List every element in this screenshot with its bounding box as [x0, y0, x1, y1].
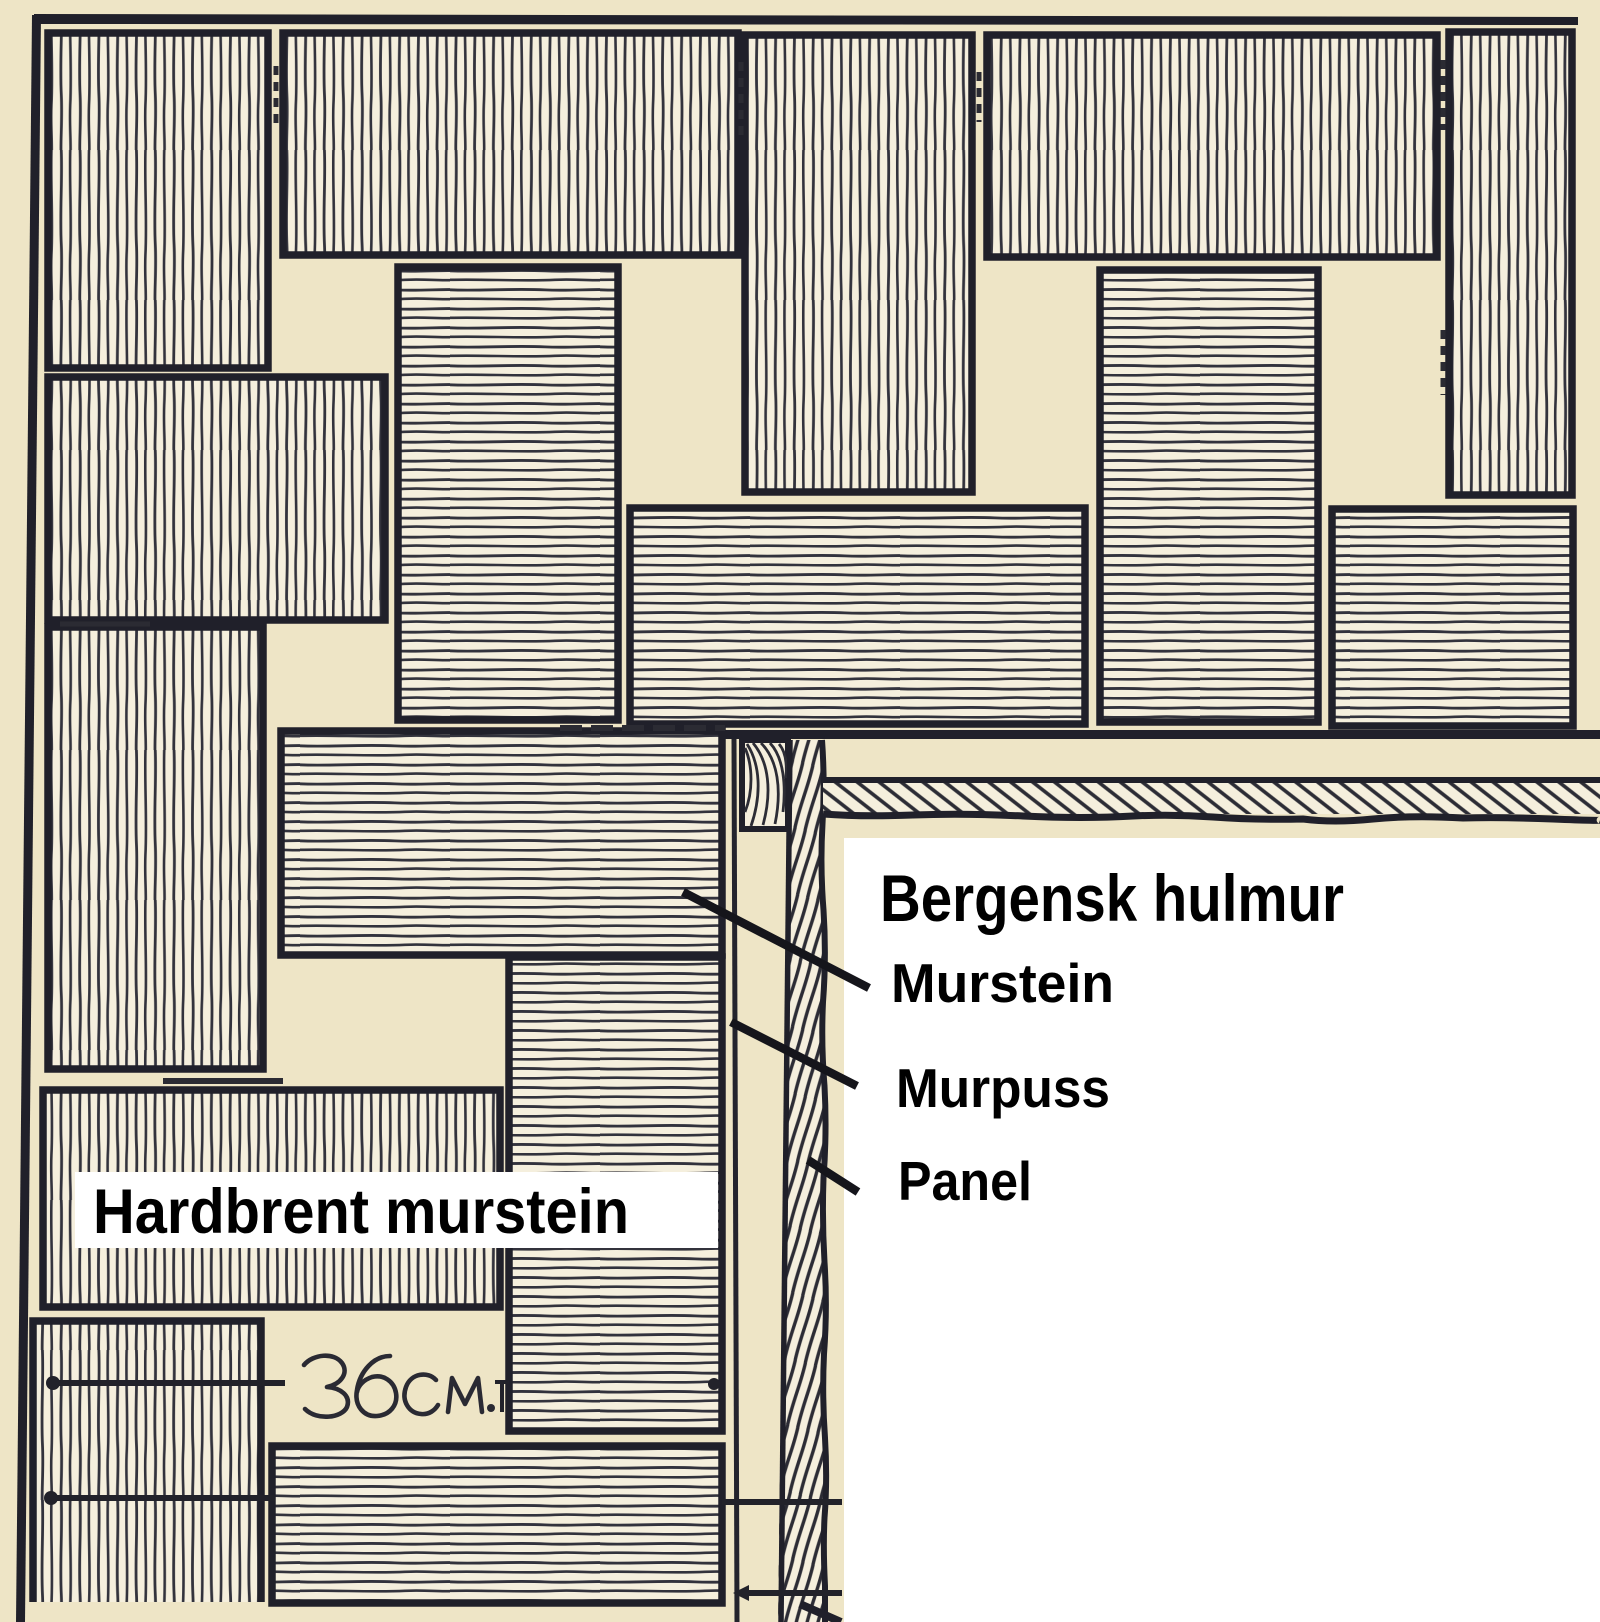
- svg-text:Panel: Panel: [898, 1150, 1032, 1212]
- svg-text:Hardbrent murstein: Hardbrent murstein: [93, 1177, 629, 1247]
- svg-text:Murpuss: Murpuss: [896, 1057, 1110, 1119]
- svg-text:Bergensk hulmur: Bergensk hulmur: [880, 861, 1344, 935]
- svg-text:Murstein: Murstein: [891, 952, 1114, 1014]
